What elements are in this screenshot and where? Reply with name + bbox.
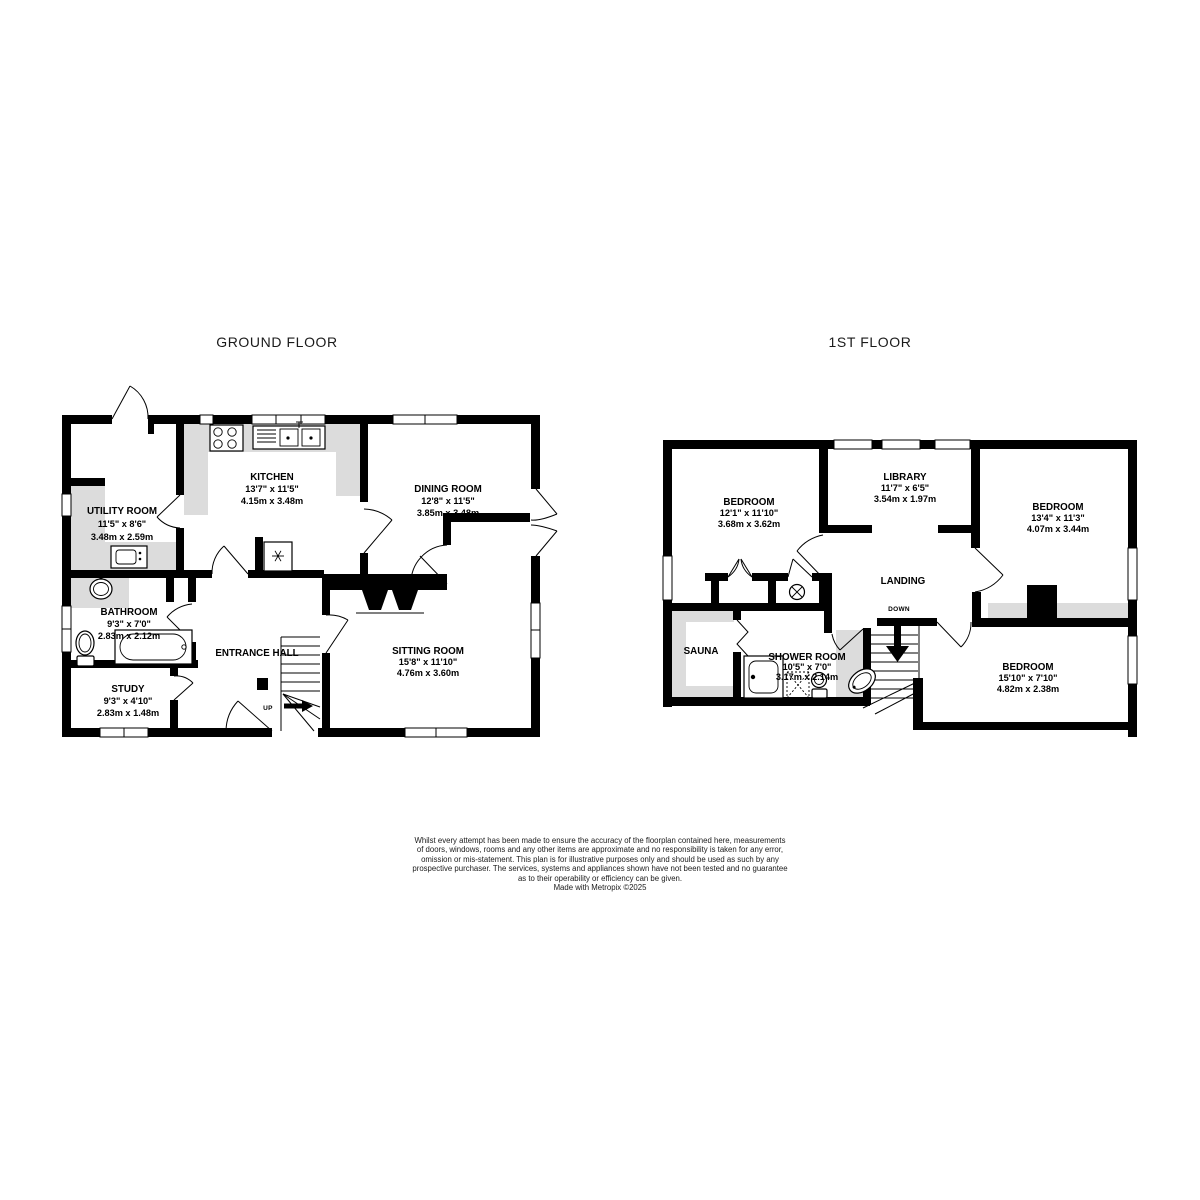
room-label-bedroom-bottom: BEDROOM 15'10" x 7'10" 4.82m x 2.38m <box>997 662 1059 694</box>
svg-text:3.85m x 3.48m: 3.85m x 3.48m <box>417 508 479 518</box>
utility-window <box>62 494 71 516</box>
svg-text:9'3" x 7'0": 9'3" x 7'0" <box>107 619 151 629</box>
svg-text:SAUNA: SAUNA <box>684 646 719 657</box>
svg-text:2.83m x 2.12m: 2.83m x 2.12m <box>98 631 160 641</box>
svg-text:DINING ROOM: DINING ROOM <box>414 484 482 495</box>
svg-text:15'10" x 7'10": 15'10" x 7'10" <box>998 673 1057 683</box>
kitchen-sink-icon <box>253 422 325 449</box>
fireplace-left <box>362 590 388 610</box>
bedroom-right-window <box>1128 548 1137 600</box>
library-window <box>834 440 872 449</box>
svg-text:SITTING ROOM: SITTING ROOM <box>392 646 464 657</box>
svg-text:15'8" x 11'10": 15'8" x 11'10" <box>399 657 458 667</box>
svg-text:11'5" x 8'6": 11'5" x 8'6" <box>98 519 146 529</box>
ground-floor-title: GROUND FLOOR <box>216 334 338 350</box>
stair-down-label: DOWN <box>888 606 910 613</box>
svg-text:10'5" x 7'0": 10'5" x 7'0" <box>783 662 832 672</box>
floorplan-page: GROUND FLOOR <box>0 0 1200 1200</box>
svg-text:BEDROOM: BEDROOM <box>1032 502 1083 513</box>
stove-icon <box>210 425 243 451</box>
ground-floor-plan: GROUND FLOOR <box>62 334 557 738</box>
disclaimer-line: omission or mis-statement. This plan is … <box>250 855 950 864</box>
disclaimer: Whilst every attempt has been made to en… <box>250 836 950 892</box>
room-label-landing: LANDING <box>881 576 926 587</box>
room-label-entrance-hall: ENTRANCE HALL <box>215 648 298 659</box>
svg-text:KITCHEN: KITCHEN <box>250 472 294 483</box>
svg-text:ENTRANCE HALL: ENTRANCE HALL <box>215 648 298 659</box>
library-window <box>882 440 920 449</box>
bedroom-left-window <box>663 556 672 600</box>
room-label-sitting-room: SITTING ROOM 15'8" x 11'10" 4.76m x 3.60… <box>392 646 464 678</box>
svg-text:LANDING: LANDING <box>881 576 926 587</box>
room-label-library: LIBRARY 11'7" x 6'5" 3.54m x 1.97m <box>874 472 936 504</box>
room-label-dining-room: DINING ROOM 12'8" x 11'5" 3.85m x 3.48m <box>414 484 482 518</box>
svg-text:3.48m x 2.59m: 3.48m x 2.59m <box>91 532 153 542</box>
svg-text:4.76m x 3.60m: 4.76m x 3.60m <box>397 668 459 678</box>
svg-text:STUDY: STUDY <box>111 684 145 695</box>
fireplace-right <box>392 590 418 610</box>
room-label-kitchen: KITCHEN 13'7" x 11'5" 4.15m x 3.48m <box>241 472 303 506</box>
freezer-icon <box>264 542 292 571</box>
library-window <box>935 440 970 449</box>
svg-text:12'8" x 11'5": 12'8" x 11'5" <box>421 496 474 506</box>
stair-up-label: UP <box>263 705 273 712</box>
sauna-bench <box>672 611 734 622</box>
svg-text:UTILITY ROOM: UTILITY ROOM <box>87 506 157 517</box>
svg-text:BATHROOM: BATHROOM <box>101 607 158 618</box>
wardrobe-strip <box>988 603 1128 619</box>
first-floor-plan: 1ST FLOOR <box>663 334 1137 737</box>
down-arrow-shaft <box>894 620 901 646</box>
svg-text:12'1" x 11'10": 12'1" x 11'10" <box>720 508 779 518</box>
svg-text:3.54m x 1.97m: 3.54m x 1.97m <box>874 494 936 504</box>
svg-text:2.83m x 1.48m: 2.83m x 1.48m <box>97 708 159 718</box>
down-arrow-head <box>886 646 909 662</box>
bedroom-bottom-window <box>1128 636 1137 684</box>
svg-text:11'7" x 6'5": 11'7" x 6'5" <box>881 483 929 493</box>
kitchen-window <box>252 415 325 424</box>
svg-text:13'7" x 11'5": 13'7" x 11'5" <box>245 484 298 494</box>
svg-text:9'3" x 4'10": 9'3" x 4'10" <box>104 696 153 706</box>
svg-text:BEDROOM: BEDROOM <box>1002 662 1053 673</box>
disclaimer-line: as to their operability or efficiency ca… <box>250 874 950 883</box>
sauna-bench <box>672 686 734 698</box>
room-label-study: STUDY 9'3" x 4'10" 2.83m x 1.48m <box>97 684 159 718</box>
first-floor-title: 1ST FLOOR <box>829 334 912 350</box>
sauna-bifold-door <box>737 620 748 656</box>
svg-text:4.82m x 2.38m: 4.82m x 2.38m <box>997 684 1059 694</box>
hot-water-cylinder-icon <box>790 585 805 600</box>
disclaimer-credit: Made with Metropix ©2025 <box>250 883 950 892</box>
svg-text:13'4" x 11'3": 13'4" x 11'3" <box>1031 513 1084 523</box>
room-label-sauna: SAUNA <box>684 646 719 657</box>
room-label-bedroom-left: BEDROOM 12'1" x 11'10" 3.68m x 3.62m <box>718 497 780 529</box>
chimney-breast <box>1027 585 1057 619</box>
window <box>200 415 213 424</box>
room-label-bedroom-right: BEDROOM 13'4" x 11'3" 4.07m x 3.44m <box>1027 502 1089 534</box>
floorplan-canvas: GROUND FLOOR <box>0 0 1200 1200</box>
svg-text:3.68m x 3.62m: 3.68m x 3.62m <box>718 519 780 529</box>
ground-room-labels: KITCHEN 13'7" x 11'5" 4.15m x 3.48m DINI… <box>87 472 482 718</box>
room-label-utility-room: UTILITY ROOM 11'5" x 8'6" 3.48m x 2.59m <box>87 506 157 542</box>
disclaimer-line: prospective purchaser. The services, sys… <box>250 864 950 873</box>
utility-sink-icon <box>111 546 147 568</box>
svg-text:3.17m x 2.14m: 3.17m x 2.14m <box>776 672 838 682</box>
svg-text:BEDROOM: BEDROOM <box>723 497 774 508</box>
toilet-icon <box>76 631 94 666</box>
disclaimer-line: of doors, windows, rooms and any other i… <box>250 845 950 854</box>
room-label-bathroom: BATHROOM 9'3" x 7'0" 2.83m x 2.12m <box>98 607 160 641</box>
disclaimer-line: Whilst every attempt has been made to en… <box>250 836 950 845</box>
svg-text:LIBRARY: LIBRARY <box>883 472 927 483</box>
svg-text:4.15m x 3.48m: 4.15m x 3.48m <box>241 496 303 506</box>
svg-text:4.07m x 3.44m: 4.07m x 3.44m <box>1027 524 1089 534</box>
